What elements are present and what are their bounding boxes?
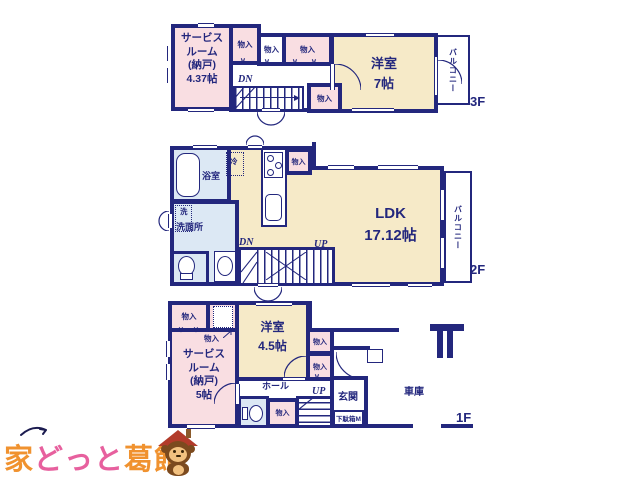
folding-door-mark: ∨ bbox=[311, 58, 317, 66]
bathtub-icon bbox=[176, 153, 200, 197]
bedroom-1f-label: 洋室 4.5帖 bbox=[237, 318, 308, 356]
toilet-icon bbox=[249, 405, 263, 422]
stair-arrow-icon bbox=[294, 95, 300, 101]
folding-door-mark: ∨ bbox=[240, 57, 246, 65]
window-mark bbox=[366, 33, 394, 38]
kitchen-sink-icon bbox=[265, 194, 282, 221]
closet-label: 物入 bbox=[264, 44, 279, 55]
logo-part-1: 家 bbox=[4, 444, 34, 476]
shoe-cabinet-label: 下駄箱M bbox=[336, 413, 361, 423]
door-arc bbox=[336, 352, 363, 379]
wall bbox=[364, 376, 368, 428]
entrance-label: 玄関 bbox=[338, 391, 358, 404]
burner-icon bbox=[267, 169, 274, 176]
wall bbox=[206, 251, 209, 286]
window-mark bbox=[408, 283, 432, 288]
mascot-eye bbox=[173, 450, 176, 453]
balcony-door-opening bbox=[440, 190, 445, 220]
stairs-down-label: DN bbox=[238, 73, 252, 86]
gate-pillar bbox=[437, 331, 443, 358]
window-mark bbox=[378, 165, 418, 170]
closet-1f-top: 物入 bbox=[168, 301, 210, 332]
closet-label: 物入 bbox=[276, 408, 290, 418]
wall bbox=[330, 346, 370, 350]
window-mark bbox=[198, 23, 214, 28]
gate-pillar bbox=[430, 324, 464, 331]
closet-1f-hall: 物入 bbox=[266, 398, 299, 428]
underfloor-storage-box bbox=[213, 306, 233, 328]
floor-label-3f: 3F bbox=[470, 94, 485, 109]
stairs-up-label: UP bbox=[312, 385, 325, 398]
closet-label: 物入 bbox=[313, 362, 327, 372]
window-mark bbox=[188, 108, 214, 113]
closet-pointer-line bbox=[223, 330, 232, 338]
entrance-step bbox=[367, 349, 383, 363]
door-opening bbox=[248, 145, 262, 150]
door-arc bbox=[438, 60, 462, 84]
door-opening bbox=[330, 64, 335, 90]
mascot-eye bbox=[181, 450, 184, 453]
closet-label: 物入 bbox=[292, 157, 306, 167]
stair-winder-lines bbox=[298, 397, 314, 410]
floor-plan-canvas: サービス ルーム (納戸) 4.37帖 物入 物入 物入 洋室 7帖 物入 DN… bbox=[0, 0, 640, 480]
fridge-label: 冷 bbox=[230, 157, 238, 167]
folding-door-mark: ∨ bbox=[193, 326, 199, 334]
door-arc bbox=[257, 111, 285, 126]
balcony-door-opening bbox=[440, 238, 445, 268]
door-arc bbox=[246, 130, 264, 145]
window-mark bbox=[193, 145, 217, 150]
window-mark bbox=[167, 68, 172, 83]
balcony-2f: バルコニー bbox=[444, 171, 472, 283]
burner-icon bbox=[275, 162, 282, 169]
service-room-3f-label: サービス ルーム (納戸) 4.37帖 bbox=[172, 32, 232, 87]
garage-label: 車庫 bbox=[404, 386, 424, 399]
door-arc bbox=[254, 287, 282, 302]
folding-door-mark: ∨ bbox=[314, 373, 320, 381]
toilet-tank-icon bbox=[180, 273, 193, 280]
stairs-up-label: UP bbox=[314, 238, 327, 251]
bathroom-label: 浴室 bbox=[202, 171, 220, 183]
door-arc bbox=[335, 64, 361, 90]
stair-direction-line bbox=[240, 97, 295, 98]
closet-side-label: 物入 bbox=[204, 334, 219, 344]
window-mark bbox=[352, 108, 394, 113]
window-mark bbox=[256, 302, 292, 307]
mascot-belly bbox=[173, 465, 184, 475]
folding-door-mark: ∨ bbox=[178, 326, 184, 334]
wall bbox=[172, 251, 209, 254]
door-arc bbox=[284, 356, 306, 378]
floor-label-1f: 1F bbox=[456, 410, 471, 425]
closet-2f: 物入 bbox=[285, 148, 312, 175]
folding-door-mark: ∨ bbox=[264, 58, 270, 66]
door-arc bbox=[214, 383, 236, 404]
stairs-down-label: DN bbox=[239, 236, 253, 249]
toilet-tank-icon bbox=[242, 407, 248, 420]
window-mark bbox=[167, 46, 172, 61]
balcony-label: バルコニー bbox=[453, 205, 464, 250]
washroom-label: 洗面所 bbox=[176, 222, 203, 234]
wall bbox=[306, 301, 312, 332]
window-mark bbox=[166, 364, 171, 380]
mascot-chimney bbox=[186, 429, 191, 438]
folding-door-mark: ∨ bbox=[292, 58, 298, 66]
closet-label: 物入 bbox=[182, 311, 197, 322]
burner-icon bbox=[267, 155, 274, 162]
mascot-mouth bbox=[176, 455, 181, 457]
closet-3f-3: 物入 bbox=[282, 33, 333, 66]
closet-label: 物入 bbox=[317, 93, 332, 104]
wall bbox=[331, 328, 399, 332]
closet-label: 物入 bbox=[313, 337, 327, 347]
window-mark bbox=[166, 341, 171, 357]
window-mark bbox=[187, 424, 215, 429]
floor-label-2f: 2F bbox=[470, 262, 485, 277]
closet-label: 物入 bbox=[238, 39, 253, 50]
stair-cross-lines bbox=[266, 252, 306, 280]
logo-part-2: どっと bbox=[34, 444, 124, 476]
window-mark bbox=[352, 283, 390, 288]
stair-winder-lines bbox=[241, 250, 257, 283]
door-arc bbox=[157, 211, 169, 231]
gate-pillar bbox=[447, 331, 453, 358]
vanity-basin-icon bbox=[217, 256, 233, 276]
closet-label: 物入 bbox=[300, 44, 315, 55]
washer-label: 洗 bbox=[180, 207, 188, 217]
shoe-cabinet: 下駄箱M bbox=[333, 410, 364, 426]
hall-label: ホール bbox=[262, 381, 289, 393]
window-mark bbox=[328, 165, 354, 170]
ldk-label: LDK 17.12帖 bbox=[343, 203, 438, 247]
